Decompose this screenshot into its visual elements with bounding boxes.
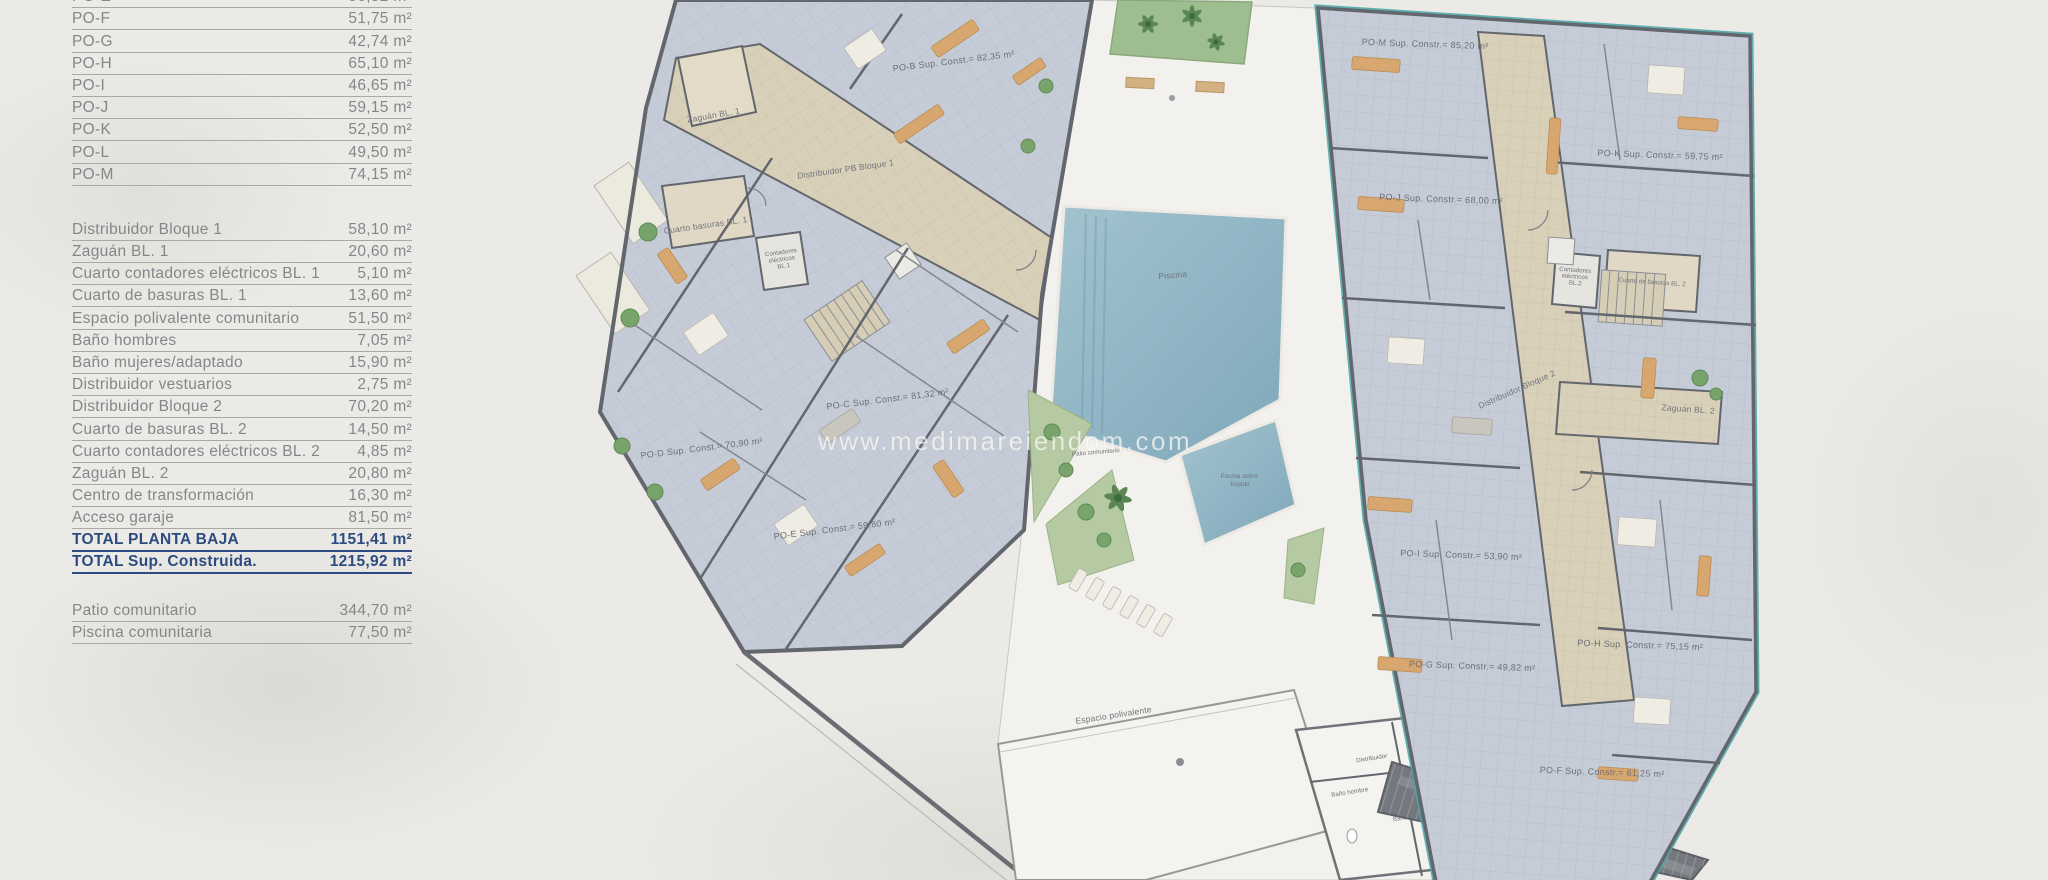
- site-boundary-wall: [736, 652, 1036, 880]
- planter: [1110, 0, 1252, 64]
- block1: Zaguán BL. 1 Distribuidor PB Bloque 1 Cu…: [576, 0, 1092, 652]
- block2-elevator: [1547, 237, 1575, 265]
- ground-floor-plan: Zaguán BL. 1 Distribuidor PB Bloque 1 Cu…: [0, 0, 2048, 880]
- watermark-text: www.medimareiendom.com: [817, 426, 1192, 456]
- bench: [1196, 81, 1224, 92]
- bench: [1126, 77, 1154, 88]
- floor-plan-page: { "legend": { "apartments": [ {"label":"…: [0, 0, 2048, 880]
